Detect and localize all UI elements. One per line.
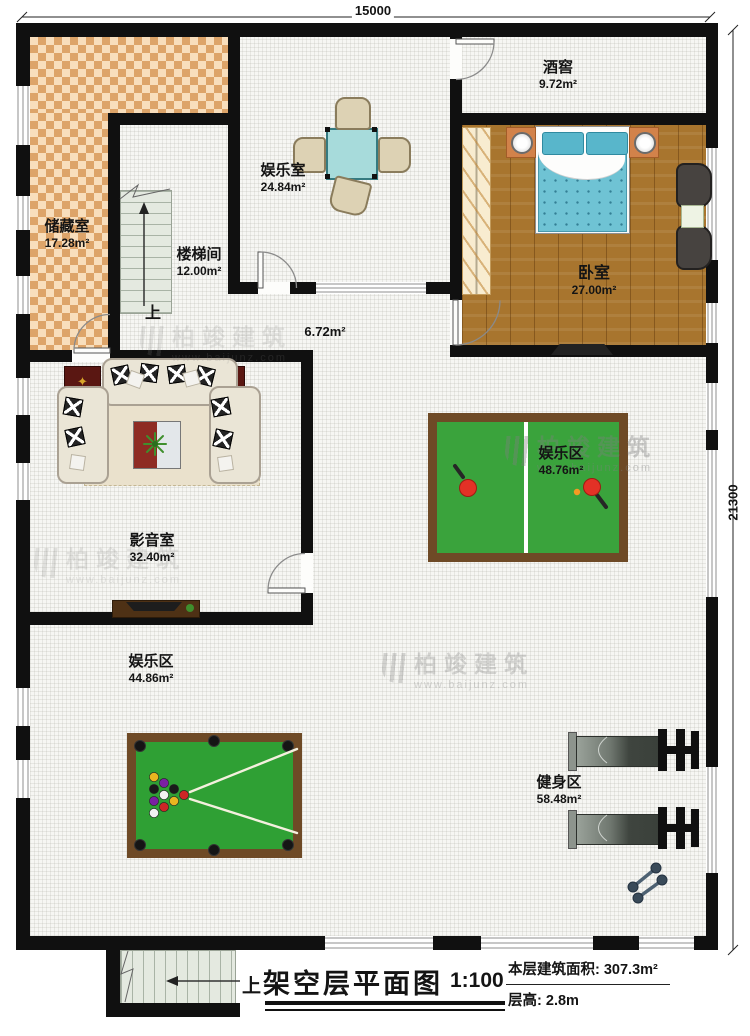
window-left-7	[16, 760, 30, 798]
window-right-3	[706, 383, 718, 430]
stair-treads-upper	[120, 190, 172, 314]
room-area: 17.28m²	[44, 236, 89, 250]
armchair-bottom	[676, 225, 712, 270]
game-table	[326, 128, 378, 180]
plan-scale: 1:100	[450, 969, 504, 993]
floor-plan: ✦ ✦ 柏竣建筑 www.baijunz.com	[0, 0, 750, 1036]
dimension-right: 21300	[726, 481, 741, 523]
room-label-bedroom: 卧室 27.00m²	[572, 264, 617, 298]
stair-up-label-lower: 上	[242, 971, 261, 998]
room-label-gameroom: 娱乐室 24.84m²	[260, 162, 305, 194]
corridor-area-value: 6.72m²	[304, 324, 345, 340]
window-right-2	[706, 303, 718, 343]
game-table-corner	[325, 127, 330, 132]
room-name: 影音室	[129, 532, 174, 550]
title-underline-thick	[265, 1001, 505, 1005]
game-table-corner	[372, 127, 377, 132]
armchair-top	[676, 163, 712, 208]
wardrobe	[462, 127, 491, 295]
plan-title: 架空层平面图	[263, 962, 443, 1001]
lamp-right	[634, 132, 656, 154]
info-separator-line	[506, 984, 670, 985]
sofa-pillow	[64, 426, 85, 447]
room-name: 卧室	[572, 264, 617, 283]
game-table-corner	[372, 174, 377, 179]
room-label-storage: 储藏室 17.28m²	[44, 218, 89, 250]
watermark: 柏竣建筑 www.baijunz.com	[140, 318, 292, 364]
door-opening-cellar	[450, 39, 462, 79]
door-opening-gameroom	[258, 282, 290, 294]
room-name: 健身区	[536, 774, 581, 792]
room-label-billiards-area: 娱乐区 44.86m²	[128, 653, 173, 685]
room-label-media: 影音室 32.40m²	[129, 532, 174, 564]
room-name: 酒窖	[539, 59, 577, 77]
room-area: 27.00m²	[572, 283, 617, 297]
cabinet-plant	[186, 604, 194, 612]
sofa-pillow-white	[69, 454, 86, 471]
watermark-logo	[32, 548, 59, 578]
watermark-logo	[503, 436, 530, 466]
window-right-5	[706, 767, 718, 873]
window-left-5	[16, 463, 30, 500]
window-right-4	[706, 450, 718, 597]
room-area: 58.48m²	[536, 792, 581, 806]
watermark-logo	[380, 653, 407, 683]
room-area: 32.40m²	[129, 550, 174, 564]
gym-machine-1-deck	[576, 736, 662, 767]
window-corridor	[316, 282, 426, 294]
title-underline-thin	[265, 1009, 505, 1011]
floor-height-label: 层高:	[508, 993, 542, 1009]
window-left-6	[16, 688, 30, 726]
wall-outer-top	[16, 23, 718, 37]
stair-treads-lower	[120, 950, 236, 1005]
room-name: 娱乐区	[128, 653, 173, 671]
bed-pillow-right	[586, 132, 628, 155]
pool-table	[127, 733, 302, 858]
bed-pillow-left	[542, 132, 584, 155]
window-left-4	[16, 378, 30, 415]
room-area: 48.76m²	[538, 463, 583, 477]
sofa-pillow-white	[217, 455, 234, 472]
floor-height-text: 层高: 2.8m	[508, 989, 579, 1010]
window-left-2	[16, 196, 30, 230]
window-bottom-1	[325, 936, 433, 950]
room-area: 44.86m²	[128, 671, 173, 685]
watermark-brand: 柏竣建筑	[172, 318, 292, 352]
dimension-top: 15000	[352, 3, 394, 18]
coffee-mat	[133, 421, 181, 469]
game-table-corner	[325, 174, 330, 179]
room-label-stairwell: 楼梯间 12.00m²	[176, 246, 221, 278]
watermark-url: www.baijunz.com	[414, 679, 534, 691]
floor-area-text: 本层建筑面积: 307.3m²	[508, 958, 658, 979]
room-name: 储藏室	[44, 218, 89, 236]
room-name: 楼梯间	[176, 246, 221, 264]
storage-floor-top	[30, 37, 228, 113]
watermark: 柏竣建筑 www.baijunz.com	[382, 645, 534, 691]
room-area: 12.00m²	[176, 264, 221, 278]
floor-height-value: 2.8m	[546, 993, 579, 1009]
wall-stairwell-left	[108, 113, 120, 358]
window-bottom-2	[481, 936, 593, 950]
gym-machine-2-deck	[576, 814, 662, 845]
side-table	[681, 205, 704, 228]
window-left-1	[16, 86, 30, 145]
door-opening-bedroom	[450, 300, 462, 345]
sofa-pillow	[212, 428, 233, 449]
floor-area-label: 本层建筑面积:	[508, 962, 600, 978]
room-label-winecellar: 酒窖 9.72m²	[539, 59, 577, 91]
wall-gameroom-left	[228, 37, 240, 294]
chair-right	[378, 137, 411, 173]
watermark-url: www.baijunz.com	[172, 352, 292, 364]
room-name: 娱乐区	[538, 445, 583, 463]
room-area: 24.84m²	[260, 180, 305, 194]
media-tv	[126, 602, 182, 611]
room-label-gym: 健身区 58.48m²	[536, 774, 581, 806]
sofa-pillow	[63, 397, 84, 418]
gym-machine-2-crossbar	[658, 824, 699, 832]
watermark-brand: 柏竣建筑	[414, 645, 534, 679]
sofa-pillow	[211, 397, 232, 418]
room-label-pingpong-area: 娱乐区 48.76m²	[538, 445, 583, 477]
lamp-left	[511, 132, 533, 154]
window-bottom-3	[639, 936, 694, 950]
wall-cellar-bottom	[450, 113, 706, 125]
watermark-logo	[138, 326, 165, 356]
floor-area-value: 307.3m²	[604, 962, 658, 978]
wall-stairwell-top	[108, 113, 240, 125]
stair-up-label-upper: 上	[145, 299, 161, 323]
window-left-3	[16, 276, 30, 314]
room-area: 9.72m²	[539, 77, 577, 91]
gym-machine-1-crossbar	[658, 746, 699, 754]
wall-annex-bottom	[106, 1003, 240, 1017]
chair-top	[335, 97, 371, 130]
room-name: 娱乐室	[260, 162, 305, 180]
corridor-area-label: 6.72m²	[304, 324, 345, 340]
watermark-url: www.baijunz.com	[66, 574, 186, 586]
bedroom-tv	[551, 344, 613, 355]
door-opening-media	[301, 553, 313, 593]
